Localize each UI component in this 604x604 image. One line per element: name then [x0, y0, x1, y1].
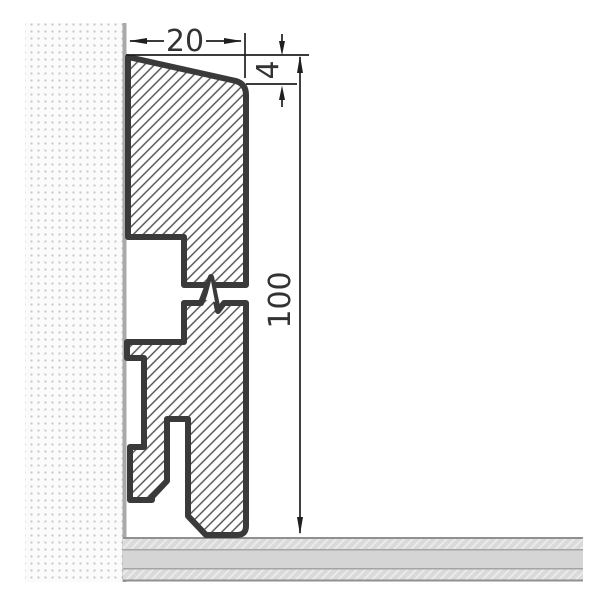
floor-divider: [123, 549, 583, 551]
wall-stucco-texture: [25, 23, 123, 582]
wall-section: [25, 23, 127, 582]
height-dimension-label: 100: [263, 271, 298, 328]
floor-section: [123, 537, 583, 582]
floor-core-layer: [123, 551, 583, 569]
chamfer-dimension-label: 4: [251, 60, 286, 79]
technical-drawing-canvas: 20 4 100: [0, 0, 604, 604]
floor-lower-layer: [123, 570, 583, 580]
floor-top-border: [123, 537, 583, 539]
floor-divider: [123, 568, 583, 570]
floor-bottom-border: [123, 580, 583, 582]
width-dimension-label: 20: [166, 24, 204, 59]
floor-upper-layer: [123, 539, 583, 549]
skirting-profile-drawing: 20 4 100: [0, 0, 604, 604]
